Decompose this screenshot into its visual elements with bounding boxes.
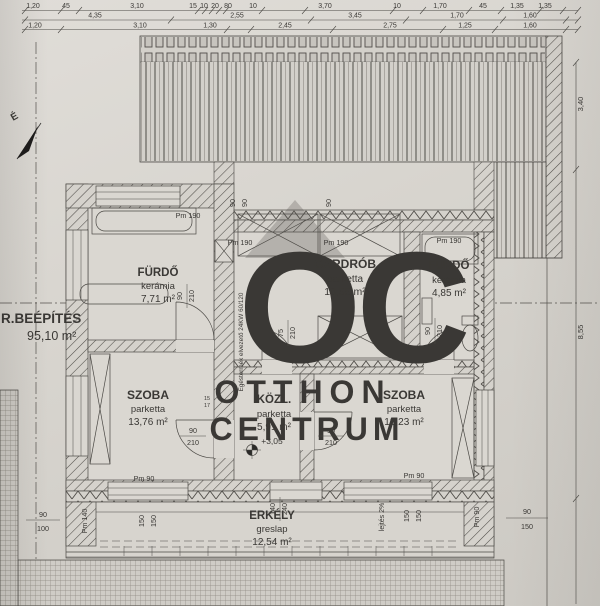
floor-plan-drawing: 1,20 45 3,10 15 10 20 80 10 3,70 10 1,70… (0, 0, 600, 606)
scanned-floor-plan: 1,20 45 3,10 15 10 20 80 10 3,70 10 1,70… (0, 0, 600, 606)
scan-shading (0, 0, 600, 606)
